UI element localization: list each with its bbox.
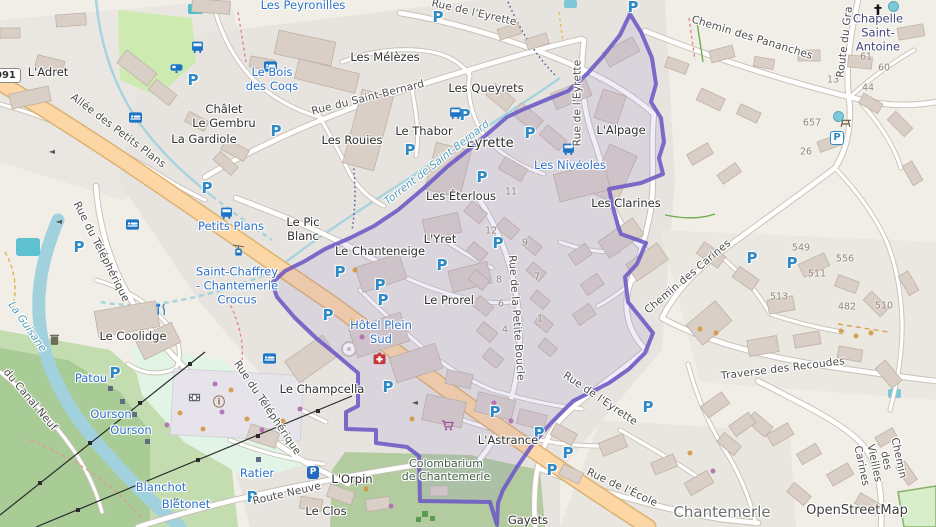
road-ref-shield: 091 xyxy=(0,68,21,83)
map-canvas[interactable]: PPPPPPPPPPPPPPPPPPPPPPPPPPPP†ⓘ◄◄◄◄ 61601… xyxy=(0,0,936,527)
map-geometry xyxy=(0,0,936,527)
